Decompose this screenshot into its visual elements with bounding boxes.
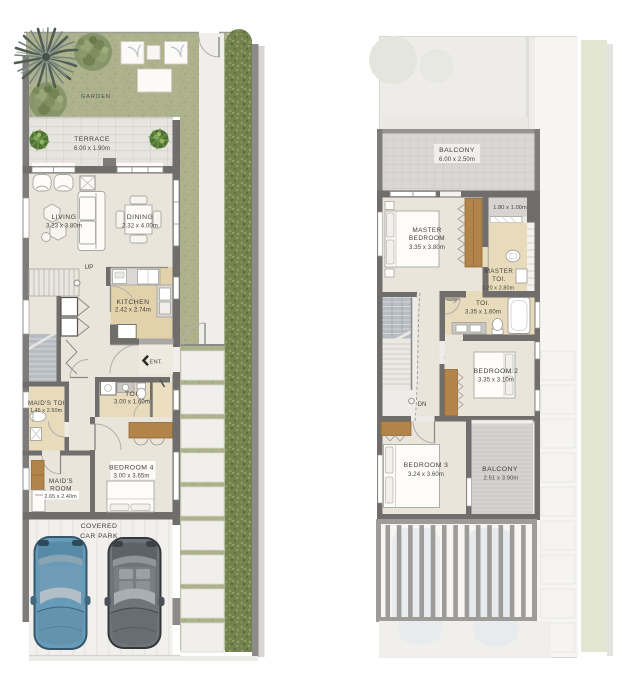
svg-text:BEDROOM 4: BEDROOM 4 <box>109 465 154 472</box>
svg-text:3.23 x 3.80m: 3.23 x 3.80m <box>46 224 82 230</box>
svg-text:UP: UP <box>84 264 93 271</box>
svg-text:3.00 x 3.65m: 3.00 x 3.65m <box>114 474 150 480</box>
svg-text:BALCONY: BALCONY <box>482 466 518 473</box>
svg-text:1.20 x 2.80m: 1.20 x 2.80m <box>482 286 515 292</box>
svg-text:MASTER: MASTER <box>412 227 441 234</box>
svg-text:CAR PARK: CAR PARK <box>80 533 118 540</box>
svg-text:1.45 x 2.50m: 1.45 x 2.50m <box>30 408 63 414</box>
svg-text:6.00 x 1.90m: 6.00 x 1.90m <box>74 146 110 152</box>
svg-text:COVERED: COVERED <box>81 523 118 530</box>
svg-text:3.35 x 3.10m: 3.35 x 3.10m <box>478 378 514 384</box>
svg-text:ENT.: ENT. <box>150 360 163 366</box>
svg-text:6.00 x 2.50m: 6.00 x 2.50m <box>439 157 475 163</box>
svg-text:TOI.: TOI. <box>476 300 490 307</box>
svg-text:2.32 x 4.00m: 2.32 x 4.00m <box>122 224 158 230</box>
svg-text:TERRACE: TERRACE <box>74 136 110 143</box>
svg-text:BEDROOM: BEDROOM <box>409 235 445 242</box>
svg-text:1.80 x 1.00m: 1.80 x 1.00m <box>493 205 527 211</box>
svg-text:MASTER: MASTER <box>485 268 514 275</box>
svg-text:3.24 x 3.60m: 3.24 x 3.60m <box>408 472 444 478</box>
svg-text:3.35 x 3.80m: 3.35 x 3.80m <box>409 245 445 251</box>
svg-text:DINING: DINING <box>127 214 154 221</box>
svg-text:TOI.: TOI. <box>125 391 140 398</box>
svg-text:2.42 x 2.74m: 2.42 x 2.74m <box>115 308 151 314</box>
svg-text:3.00 x 1.60m: 3.00 x 1.60m <box>114 400 150 406</box>
svg-text:LIVING: LIVING <box>52 214 77 221</box>
svg-text:BEDROOM 2: BEDROOM 2 <box>474 368 519 375</box>
svg-text:MAID'S: MAID'S <box>49 478 73 485</box>
svg-text:DN: DN <box>418 402 427 408</box>
svg-text:2.65 x 2.40m: 2.65 x 2.40m <box>44 494 77 500</box>
svg-text:KITCHEN: KITCHEN <box>117 299 150 306</box>
svg-text:2.51 x 3.90m: 2.51 x 3.90m <box>484 476 519 482</box>
svg-text:MAID'S TOI.: MAID'S TOI. <box>28 400 67 407</box>
svg-text:3.35 x 1.60m: 3.35 x 1.60m <box>465 310 501 316</box>
svg-text:TOI.: TOI. <box>492 276 506 283</box>
svg-text:BEDROOM 3: BEDROOM 3 <box>404 462 449 469</box>
svg-text:BALCONY: BALCONY <box>439 147 475 154</box>
svg-text:GARDEN: GARDEN <box>81 94 111 100</box>
